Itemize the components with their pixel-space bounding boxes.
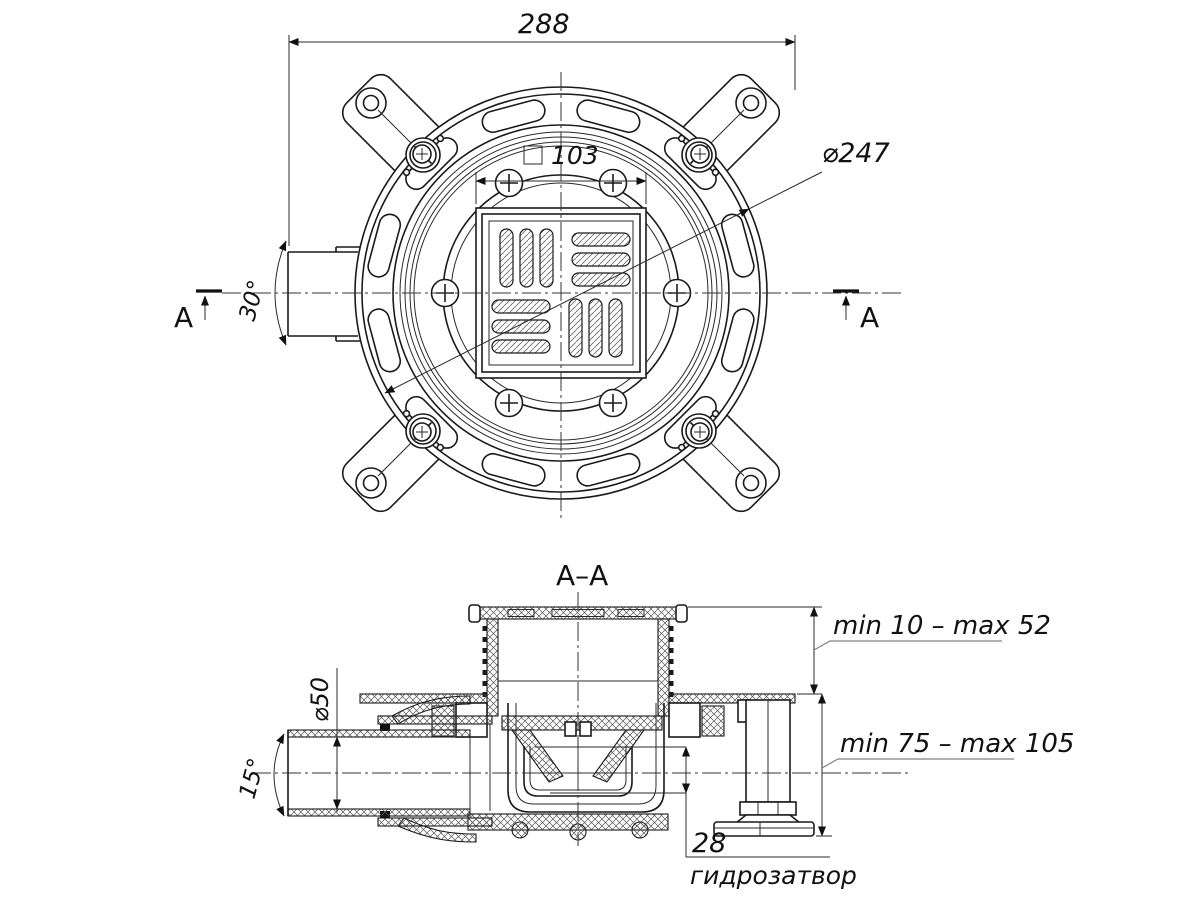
dim-min75-max105-label: min 75 – max 105 [840, 729, 1074, 759]
dim-min10-max52-label: min 10 – max 52 [833, 611, 1051, 641]
adjustable-foot [714, 700, 814, 836]
dim-30deg-label: 30° [235, 277, 271, 323]
water-trap-body [468, 703, 668, 840]
top-view: 288 103 ⌀247 30° A [174, 9, 902, 518]
dim-15deg-label: 15° [235, 755, 271, 801]
dim-247-label: ⌀247 [822, 138, 890, 169]
dim-28-label: 28 [692, 828, 726, 859]
dim-pipe-diameter: ⌀50 [306, 668, 337, 812]
section-cut-marker-right: A [833, 291, 879, 334]
dim-body-height: min 75 – max 105 [816, 694, 1074, 836]
dim-grate-adjust: min 10 – max 52 [688, 607, 1051, 694]
water-seal-label: гидрозатвор [690, 861, 857, 890]
drawing-canvas: 288 103 ⌀247 30° A [0, 0, 1200, 900]
dim-d50-label: ⌀50 [306, 677, 334, 722]
section-marker-a-left: A [174, 301, 193, 334]
section-cut-marker-left: A [174, 291, 222, 334]
dim-103-label: 103 [551, 141, 599, 170]
section-view: A–A [235, 559, 1075, 890]
dim-288-label: 288 [518, 9, 570, 40]
dim-tilt-angle: 15° [235, 734, 284, 816]
outlet-pipe-top [288, 247, 360, 341]
section-title: A–A [556, 559, 608, 592]
dim-swivel-angle: 30° [235, 241, 286, 345]
section-marker-a-right: A [860, 301, 879, 334]
technical-drawing: 288 103 ⌀247 30° A [0, 0, 1200, 900]
